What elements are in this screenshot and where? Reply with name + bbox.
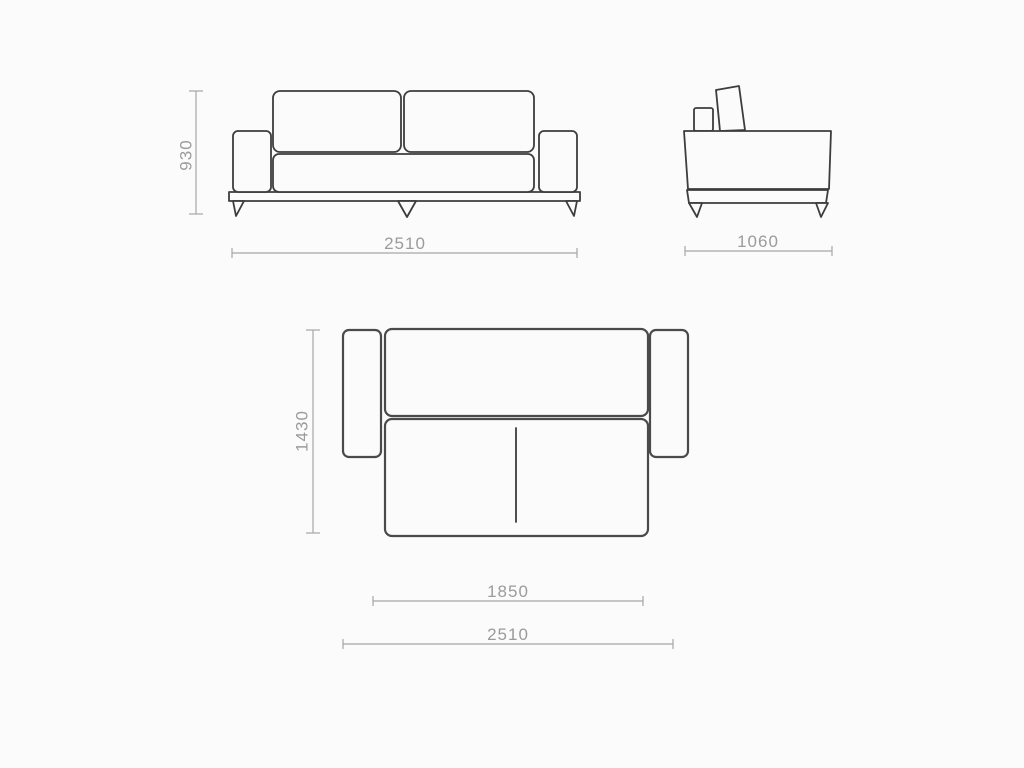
front-width-label: 2510 [384, 234, 426, 253]
side-view [684, 86, 831, 217]
top-depth-dimension: 1430 [293, 330, 321, 533]
front-view [229, 91, 580, 217]
side-base-platform [687, 190, 828, 203]
sofa-drawing-canvas: 930 2510 1060 [0, 0, 1024, 768]
top-width-dimension: 2510 [343, 625, 673, 649]
front-right-armrest [539, 131, 577, 192]
side-depth-dimension: 1060 [685, 232, 832, 256]
front-right-leg [566, 201, 577, 216]
top-depth-label: 1430 [293, 410, 312, 452]
side-front-leg [689, 203, 702, 217]
side-back-leg [816, 203, 828, 217]
top-view [343, 329, 688, 536]
front-base-platform [229, 192, 580, 201]
side-body [684, 131, 831, 189]
technical-drawing-page: 930 2510 1060 [0, 0, 1024, 768]
side-depth-label: 1060 [737, 232, 779, 251]
front-back-cushion-right [404, 91, 534, 152]
top-right-armrest [650, 330, 688, 457]
front-left-armrest [233, 131, 271, 192]
side-armrest-block [694, 108, 713, 131]
side-back-cushion [716, 86, 745, 131]
top-inner-width-label: 1850 [487, 582, 529, 601]
front-back-cushion-left [273, 91, 401, 152]
top-left-armrest [343, 330, 381, 457]
front-height-dimension: 930 [177, 91, 204, 214]
front-middle-leg [398, 201, 416, 217]
top-back-section [385, 329, 648, 416]
front-height-label: 930 [177, 139, 196, 170]
top-width-label: 2510 [487, 625, 529, 644]
front-seat-cushion [273, 154, 534, 192]
front-width-dimension: 2510 [232, 234, 577, 258]
front-left-leg [233, 201, 244, 216]
top-inner-width-dimension: 1850 [373, 582, 643, 606]
